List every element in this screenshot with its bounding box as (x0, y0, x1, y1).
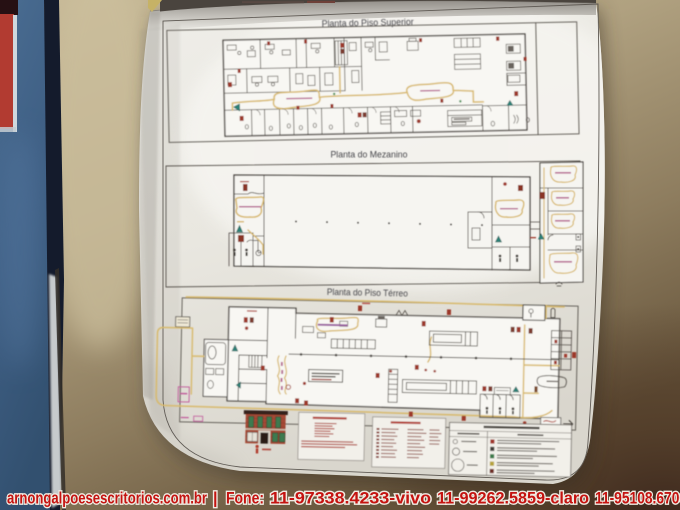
svg-text:Fone:: Fone: (226, 490, 264, 508)
svg-text:|: | (213, 490, 218, 508)
svg-text:11-95108.6706-86: 11-95108.6706-86 (595, 490, 680, 508)
svg-text:11-99262.5859-claro: 11-99262.5859-claro (437, 490, 589, 508)
svg-text:Planta do Mezanino: Planta do Mezanino (331, 150, 408, 160)
svg-text:Planta do Piso Térreo: Planta do Piso Térreo (327, 287, 408, 299)
svg-text:arnongalpoesescritorios.com.br: arnongalpoesescritorios.com.br (7, 490, 208, 508)
svg-text:11-97338.4233-vivo: 11-97338.4233-vivo (270, 490, 431, 508)
